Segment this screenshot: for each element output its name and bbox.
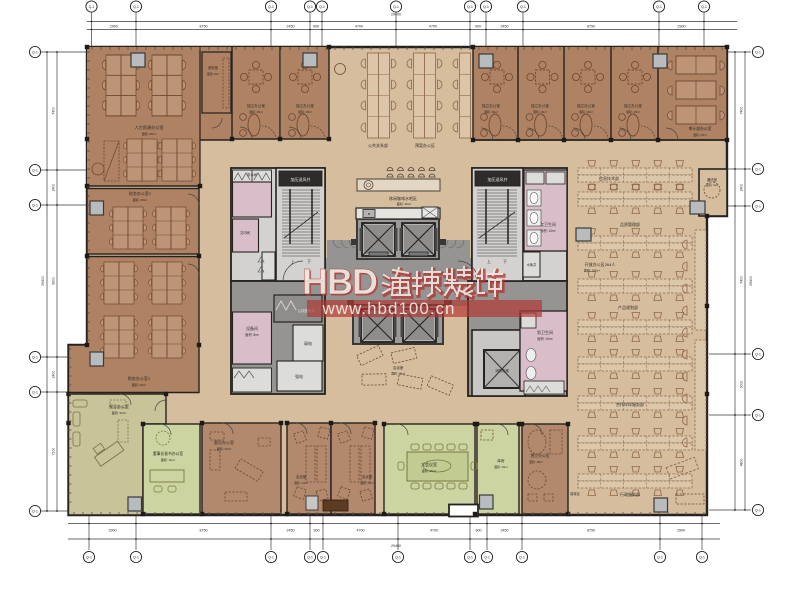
svg-text:下: 下 [503, 259, 507, 264]
svg-text:加压送风井: 加压送风井 [488, 176, 508, 182]
svg-text:面积: 98m²: 面积: 98m² [142, 131, 157, 136]
svg-text:面积: 165m²: 面积: 165m² [584, 268, 600, 273]
svg-text:面积: 10m²: 面积: 10m² [494, 465, 508, 469]
svg-text:Q-1: Q-1 [395, 555, 401, 559]
svg-text:行政服务部: 行政服务部 [620, 491, 640, 497]
svg-text:独立办公室: 独立办公室 [577, 103, 595, 108]
svg-text:开放办公区264人: 开放办公区264人 [585, 261, 616, 267]
svg-text:2900: 2900 [109, 529, 117, 533]
svg-text:Q-1: Q-1 [755, 204, 761, 208]
svg-text:面积: 8m²: 面积: 8m² [245, 332, 259, 337]
svg-text:独立办公室: 独立办公室 [624, 103, 642, 108]
svg-text:Q-1: Q-1 [307, 555, 313, 559]
svg-text:Q-1: Q-1 [319, 5, 325, 9]
svg-text:公共关系部: 公共关系部 [368, 142, 388, 148]
svg-text:面积: 14m²: 面积: 14m² [294, 481, 308, 485]
svg-text:8750: 8750 [587, 24, 595, 28]
svg-text:洽谈室: 洽谈室 [393, 365, 404, 370]
svg-text:29400: 29400 [41, 276, 45, 286]
svg-text:Q-1: Q-1 [393, 5, 399, 9]
svg-text:29400: 29400 [749, 276, 753, 286]
svg-text:Q-1: Q-1 [32, 390, 38, 394]
svg-text:面积: 15m²: 面积: 15m² [626, 110, 640, 114]
svg-text:900: 900 [313, 24, 319, 28]
svg-text:资料室: 资料室 [208, 65, 219, 70]
svg-text:面积: 16m²: 面积: 16m² [537, 336, 552, 341]
svg-text:独立办公室: 独立办公室 [482, 103, 500, 108]
svg-text:Q-1: Q-1 [133, 555, 139, 559]
svg-text:财务办公室1: 财务办公室1 [128, 375, 151, 381]
svg-text:2900: 2900 [110, 24, 118, 28]
svg-text:面积: 15m²: 面积: 15m² [391, 372, 405, 376]
svg-text:面积: 15m²: 面积: 15m² [579, 110, 593, 114]
svg-text:文印间: 文印间 [240, 230, 250, 235]
svg-text:4700: 4700 [357, 529, 365, 533]
svg-text:独立办公室: 独立办公室 [247, 103, 265, 108]
svg-text:Q-1: Q-1 [32, 50, 38, 54]
svg-text:Q-1: Q-1 [755, 508, 761, 512]
svg-text:独立办公室: 独立办公室 [296, 103, 314, 108]
svg-text:面积: 14m²: 面积: 14m² [360, 481, 374, 485]
svg-text:独立办公室: 独立办公室 [531, 103, 549, 108]
svg-text:B: B [368, 212, 370, 216]
svg-text:弱电: 弱电 [304, 340, 312, 346]
svg-text:面积: 15m²: 面积: 15m² [533, 110, 547, 114]
svg-text:4700: 4700 [430, 529, 438, 533]
svg-text:900: 900 [475, 24, 481, 28]
svg-text:2900: 2900 [677, 529, 685, 533]
svg-text:合作伙伴服务部: 合作伙伴服务部 [616, 401, 644, 407]
svg-text:Q-1: Q-1 [755, 352, 761, 356]
svg-text:男卫生间: 男卫生间 [537, 329, 553, 335]
svg-text:Q-1: Q-1 [520, 5, 526, 9]
svg-text:Q-1: Q-1 [307, 5, 313, 9]
svg-text:www.hbd100.cn: www.hbd100.cn [321, 299, 455, 318]
svg-text:人力资源办公室: 人力资源办公室 [134, 124, 163, 131]
svg-text:茶水间: 茶水间 [247, 172, 257, 177]
svg-text:Q-1: Q-1 [467, 5, 473, 9]
svg-text:8750: 8750 [587, 529, 595, 533]
svg-text:强电: 强电 [295, 373, 303, 379]
svg-text:董事长秘书办公室: 董事长秘书办公室 [153, 451, 184, 456]
svg-text:Q-1: Q-1 [755, 167, 761, 171]
svg-text:Q-1: Q-1 [320, 555, 326, 559]
svg-text:面积: 45m²: 面积: 45m² [132, 382, 147, 387]
svg-text:8750: 8750 [200, 24, 208, 28]
svg-text:面积: 25m²: 面积: 25m² [693, 133, 707, 137]
svg-text:审计部办公室: 审计部办公室 [689, 126, 712, 131]
svg-text:Q-1: Q-1 [32, 355, 38, 359]
svg-text:Q-1: Q-1 [268, 5, 274, 9]
svg-text:Q-1: Q-1 [32, 203, 38, 207]
svg-text:面积: 11m²: 面积: 11m² [161, 457, 175, 462]
svg-text:Q-1: Q-1 [699, 555, 705, 559]
svg-text:面积: 16m²: 面积: 16m² [540, 228, 555, 233]
svg-text:面积: 8m²: 面积: 8m² [207, 72, 219, 76]
svg-text:加压送风井: 加压送风井 [291, 176, 311, 182]
svg-text:面积: 36m²: 面积: 36m² [397, 201, 412, 206]
svg-text:女卫生间: 女卫生间 [540, 221, 556, 227]
svg-text:3000: 3000 [740, 381, 744, 389]
svg-text:Q-1: Q-1 [268, 555, 274, 559]
svg-text:4800: 4800 [740, 459, 744, 467]
svg-text:2900: 2900 [678, 24, 686, 28]
svg-text:7400: 7400 [740, 107, 744, 115]
svg-text:面积: 18m²: 面积: 18m² [529, 460, 543, 464]
svg-text:8750: 8750 [200, 529, 208, 533]
svg-text:Q-1: Q-1 [755, 413, 761, 417]
svg-text:HBD: HBD [302, 261, 377, 302]
svg-text:品质管理部: 品质管理部 [620, 221, 640, 227]
svg-text:洽谈室: 洽谈室 [296, 474, 307, 479]
svg-text:水管井: 水管井 [527, 262, 537, 267]
svg-text:洽谈室: 洽谈室 [362, 474, 373, 479]
svg-text:Q-1: Q-1 [484, 555, 490, 559]
svg-text:7100: 7100 [52, 448, 56, 456]
svg-text:7400: 7400 [52, 107, 56, 115]
svg-text:独立办公室: 独立办公室 [531, 453, 550, 458]
svg-text:29400: 29400 [391, 544, 401, 548]
svg-text:Q-1: Q-1 [32, 168, 38, 172]
svg-text:900: 900 [476, 529, 482, 533]
svg-text:7400: 7400 [740, 276, 744, 284]
svg-text:4700: 4700 [355, 24, 363, 28]
svg-text:4700: 4700 [429, 24, 437, 28]
svg-text:预案办公区: 预案办公区 [415, 142, 435, 148]
svg-text:面积: 33m²: 面积: 33m² [112, 410, 127, 415]
svg-text:面积: 4m²: 面积: 4m² [706, 183, 718, 187]
svg-text:Q-1: Q-1 [657, 555, 663, 559]
svg-text:面积: 28m²: 面积: 28m² [133, 197, 148, 202]
svg-text:Q-1: Q-1 [755, 50, 761, 54]
svg-text:2450: 2450 [287, 529, 295, 533]
svg-text:Q-1: Q-1 [483, 5, 489, 9]
svg-text:2400: 2400 [52, 371, 56, 379]
svg-text:接待区: 接待区 [570, 491, 580, 496]
svg-text:Q-1: Q-1 [519, 555, 525, 559]
svg-text:消防电梯: 消防电梯 [495, 368, 509, 373]
svg-text:面积: 15m²: 面积: 15m² [484, 110, 498, 114]
svg-text:2450: 2450 [287, 24, 295, 28]
svg-text:面积: 15m²: 面积: 15m² [249, 110, 263, 114]
svg-text:财务办公室2: 财务办公室2 [129, 190, 152, 196]
svg-text:面积: 33m²: 面积: 33m² [217, 446, 232, 451]
svg-text:Q-1: Q-1 [86, 555, 92, 559]
svg-text:休闲咖啡水吧区: 休闲咖啡水吧区 [389, 195, 417, 201]
svg-text:Q-1: Q-1 [701, 5, 707, 9]
svg-text:设备间: 设备间 [246, 325, 258, 331]
svg-text:2450: 2450 [501, 529, 509, 533]
svg-text:上: 上 [487, 258, 491, 264]
svg-text:面积: 35m²: 面积: 35m² [422, 468, 437, 473]
svg-text:29400: 29400 [391, 13, 401, 17]
svg-text:Q-1: Q-1 [32, 509, 38, 513]
svg-text:Q-1: Q-1 [467, 555, 473, 559]
svg-text:900: 900 [314, 529, 320, 533]
svg-text:2400: 2400 [52, 184, 56, 192]
svg-text:Q-1: Q-1 [89, 5, 95, 9]
svg-text:大会议室: 大会议室 [421, 461, 437, 467]
svg-text:信息技术部: 信息技术部 [599, 175, 619, 181]
svg-text:视总办公室: 视总办公室 [109, 403, 129, 409]
svg-text:9600: 9600 [52, 277, 56, 285]
svg-text:Q-1: Q-1 [133, 5, 139, 9]
svg-text:通讯室: 通讯室 [707, 177, 718, 182]
svg-text:超总办公室: 超总办公室 [214, 439, 234, 445]
svg-text:产品规划部: 产品规划部 [618, 304, 638, 310]
svg-text:2450: 2450 [501, 24, 509, 28]
svg-text:2400: 2400 [740, 184, 744, 192]
svg-text:面积: 15m²: 面积: 15m² [298, 110, 312, 114]
svg-text:Q-1: Q-1 [656, 5, 662, 9]
svg-text:库房: 库房 [497, 458, 505, 463]
